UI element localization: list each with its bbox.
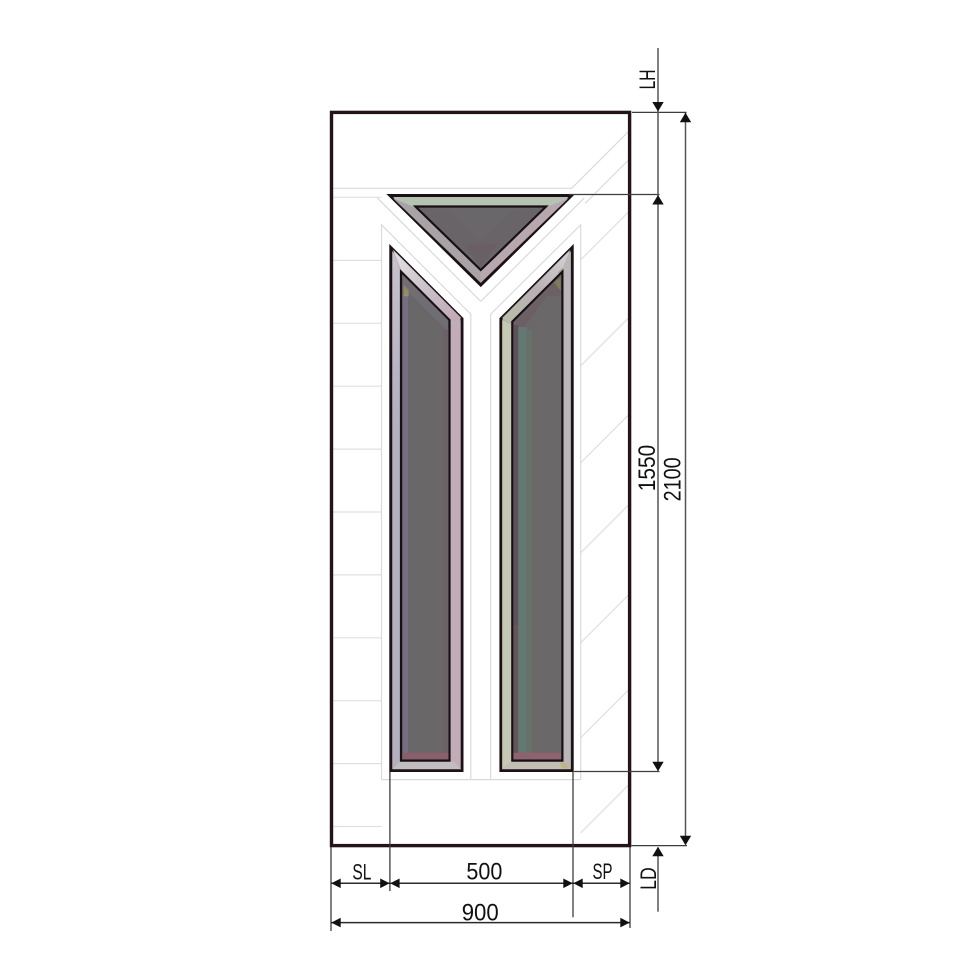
svg-text:1550: 1550 <box>634 445 661 492</box>
svg-text:SL: SL <box>352 860 371 885</box>
svg-text:LD: LD <box>636 867 661 890</box>
svg-text:SP: SP <box>593 859 613 884</box>
svg-text:500: 500 <box>466 859 502 886</box>
svg-text:2100: 2100 <box>659 457 686 501</box>
svg-text:LH: LH <box>635 69 660 89</box>
svg-text:900: 900 <box>462 899 499 926</box>
